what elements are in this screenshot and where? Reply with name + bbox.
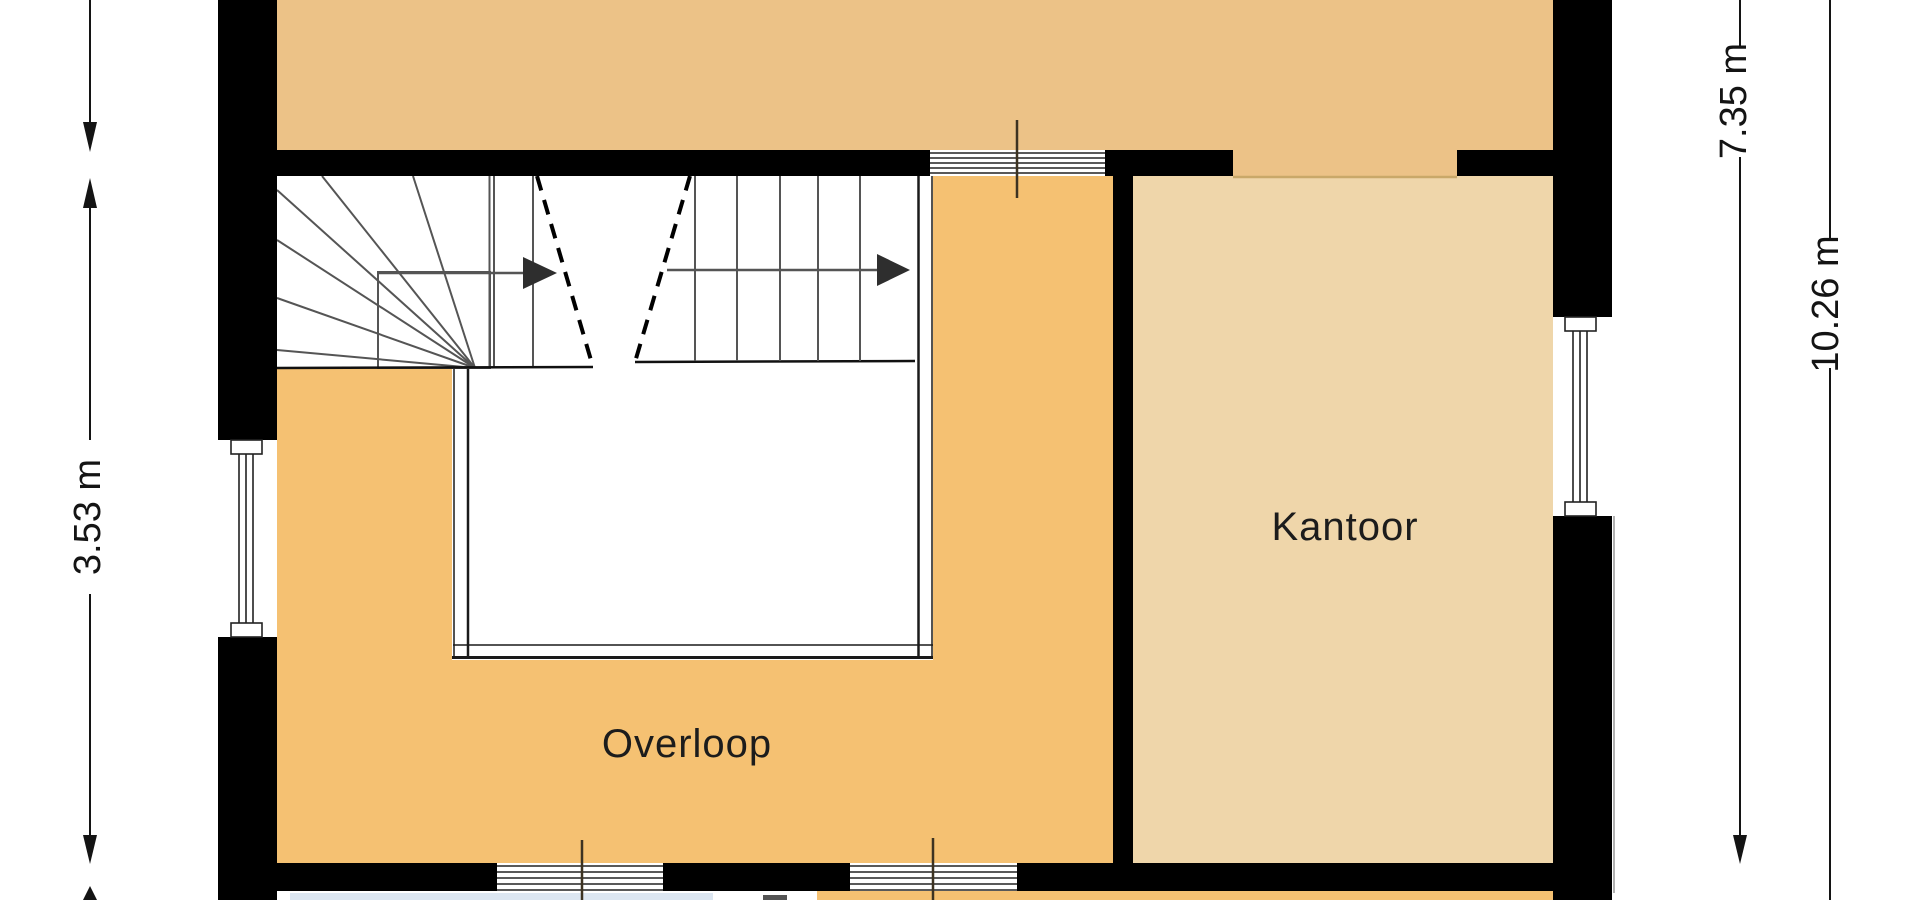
below-floor-tan-strip — [817, 891, 1553, 900]
room-label-overloop: Overloop — [527, 722, 847, 766]
dimension-label-353: 3.53 m — [66, 357, 110, 677]
wall-bottom-middle-segment — [663, 863, 850, 891]
wall-bottom-right-segment — [1017, 863, 1612, 891]
wall-bottom-left-segment — [277, 863, 497, 891]
window-left-wall — [218, 440, 277, 637]
wall-divider-overloop-kantoor — [1113, 176, 1133, 863]
wall-top-right-segment — [1457, 150, 1553, 176]
wall-right-upper — [1553, 0, 1612, 317]
dimension-label-1026: 10.26 m — [1804, 144, 1848, 464]
wall-top-middle-segment — [1105, 150, 1233, 176]
below-floor-blue-strip — [290, 893, 713, 900]
stair-area — [277, 176, 933, 368]
wall-left-lower — [218, 637, 277, 900]
stairwell-void — [452, 361, 933, 660]
wall-top-left-segment — [277, 150, 930, 176]
dimension-label-735: 7.35 m — [1712, 0, 1756, 261]
below-floor-dark-object — [763, 895, 787, 900]
wall-left-upper — [218, 0, 277, 440]
wall-right-lower — [1553, 516, 1612, 900]
floorplan-drawing — [0, 0, 1920, 900]
room-top-floor — [277, 0, 1553, 176]
window-right-wall — [1553, 317, 1612, 516]
room-label-kantoor: Kantoor — [1185, 505, 1505, 549]
floorplan-canvas: Overloop Kantoor 3.53 m 7.35 m 10.26 m — [0, 0, 1920, 900]
